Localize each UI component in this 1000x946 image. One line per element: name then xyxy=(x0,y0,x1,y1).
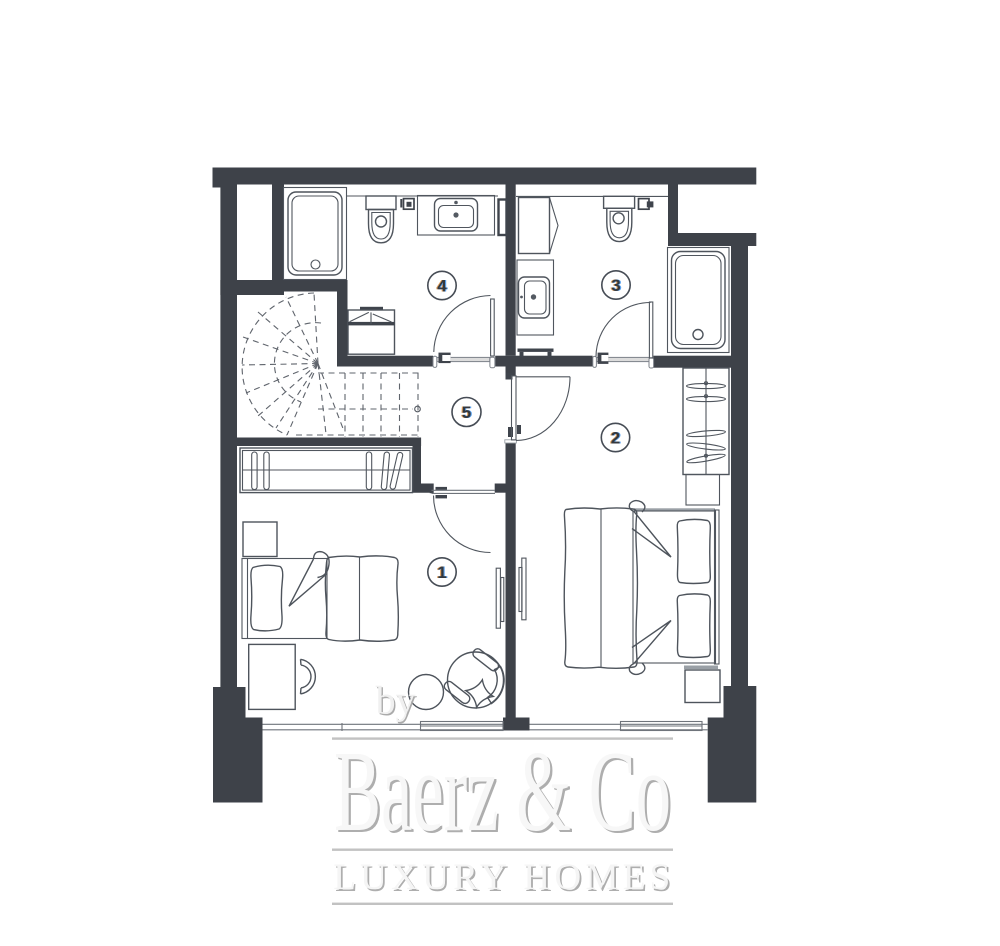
svg-text:Baerz & Co: Baerz & Co xyxy=(334,728,671,856)
svg-text:by: by xyxy=(376,678,416,723)
